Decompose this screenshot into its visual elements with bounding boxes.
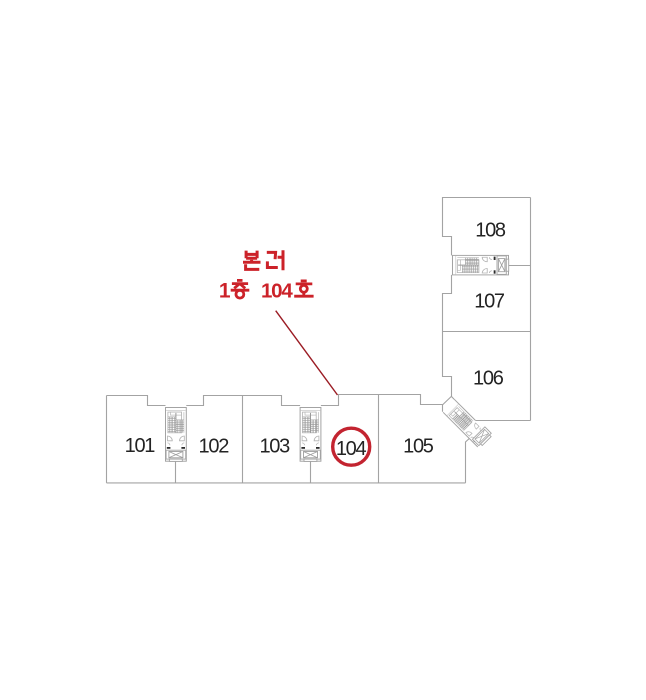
svg-text:103: 103 [259, 435, 290, 457]
svg-text:101: 101 [125, 435, 156, 457]
svg-text:104: 104 [336, 438, 367, 460]
svg-text:104: 104 [261, 280, 293, 303]
svg-text:108: 108 [475, 220, 506, 242]
svg-text:106: 106 [473, 367, 504, 389]
svg-text:1: 1 [219, 280, 231, 303]
svg-text:105: 105 [403, 436, 434, 458]
svg-text:102: 102 [199, 435, 230, 457]
svg-text:107: 107 [474, 291, 505, 313]
